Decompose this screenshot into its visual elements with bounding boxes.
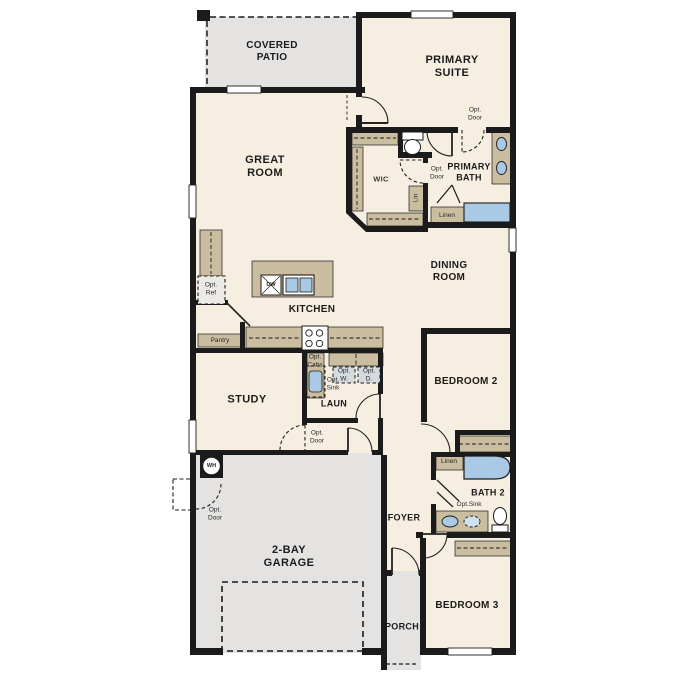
room-label-foyer: FOYER — [388, 513, 421, 524]
room-label-bath-2: BATH 2 — [471, 488, 505, 499]
stove-icon — [302, 326, 328, 350]
wall — [486, 127, 516, 133]
wall — [431, 504, 436, 534]
label-lin-closet: Lin — [413, 194, 420, 202]
room-label-kitchen: KITCHEN — [289, 304, 336, 316]
wall — [190, 87, 196, 655]
bedroom2-closet-shelf — [457, 436, 511, 452]
wall — [356, 18, 362, 97]
room-label-bedroom-3: BEDROOM 3 — [435, 600, 498, 612]
wall — [421, 334, 427, 422]
wall — [423, 155, 428, 163]
room-label-wic: WIC — [373, 176, 388, 185]
wall — [372, 450, 383, 455]
label-linen-bath2: Linen — [441, 458, 457, 466]
wall — [416, 532, 423, 538]
wall — [423, 183, 428, 228]
room-label-dining-room: DINING ROOM — [431, 260, 468, 284]
label-opt-door-garage: Opt. Door — [208, 506, 222, 521]
label-linen-primary: Linen — [439, 212, 455, 220]
wall — [447, 532, 516, 538]
room-label-primary-bath: PRIMARY BATH — [447, 161, 490, 182]
wall — [362, 648, 383, 655]
wall — [420, 538, 426, 653]
label-opt-door-primary: Opt. Door — [468, 106, 482, 121]
window — [189, 420, 196, 453]
wall — [381, 455, 387, 670]
sink-icon — [442, 516, 458, 527]
wall — [240, 322, 245, 348]
wall — [421, 328, 516, 334]
wic-top-shelf — [352, 132, 398, 145]
wic-left-shelf — [352, 147, 363, 211]
label-opt-door-wic: Opt. Door — [430, 165, 444, 180]
wall — [195, 87, 365, 93]
wic-bottom-shelf — [367, 213, 423, 226]
room-label-bedroom-2: BEDROOM 2 — [434, 376, 497, 388]
wall — [346, 132, 352, 212]
room-label-covered-patio: COVERED PATIO — [246, 40, 298, 64]
wall — [419, 570, 426, 576]
label-opt-sink-bath2: Opt.Sink — [457, 501, 482, 509]
label-opt-dryer: Opt. D. — [363, 367, 375, 382]
label-dishwasher: DW — [266, 282, 275, 288]
label-opt-washer: Opt. W. — [338, 367, 350, 382]
window — [411, 11, 453, 18]
toilet-icon — [492, 508, 508, 533]
floor-porch — [384, 571, 421, 670]
wall — [305, 418, 358, 423]
room-label-porch: PORCH — [385, 622, 419, 633]
room-label-great-room: GREAT ROOM — [245, 154, 285, 180]
wall — [455, 430, 516, 435]
wall — [195, 348, 383, 353]
wall — [431, 452, 465, 457]
label-opt-door-study: Opt. Door — [310, 429, 324, 444]
room-label-laundry: LAUN — [321, 399, 347, 410]
floor-plan-drawing — [0, 0, 687, 687]
window — [189, 185, 196, 218]
kitchen-sink-icon — [283, 275, 314, 295]
label-opt-ref: Opt. Ref — [205, 281, 217, 296]
room-label-primary-suite: PRIMARY SUITE — [425, 54, 478, 80]
label-water-heater: WH — [207, 463, 216, 469]
wall — [428, 222, 516, 228]
bedroom3-closet-shelf — [455, 541, 511, 556]
wall — [366, 226, 428, 232]
floor-plan: COVERED PATIO PRIMARY SUITE GREAT ROOM W… — [0, 0, 687, 687]
patio-slider-window — [227, 86, 261, 93]
sink-icon — [497, 162, 507, 175]
room-label-garage: 2-BAY GARAGE — [264, 544, 315, 570]
sink-icon — [497, 138, 507, 151]
patio-post — [197, 10, 210, 21]
sink-icon — [309, 371, 322, 392]
room-label-study: STUDY — [227, 394, 266, 407]
bathtub-icon — [464, 456, 510, 479]
label-opt-cabs: Opt. Cabs — [307, 353, 322, 368]
label-pantry: Pantry — [211, 337, 230, 345]
wall — [431, 452, 436, 480]
wall — [190, 648, 223, 655]
shower-icon — [464, 203, 510, 222]
window — [448, 648, 492, 655]
window — [509, 228, 516, 252]
wall — [378, 418, 383, 450]
optional-sink-icon — [464, 516, 480, 527]
